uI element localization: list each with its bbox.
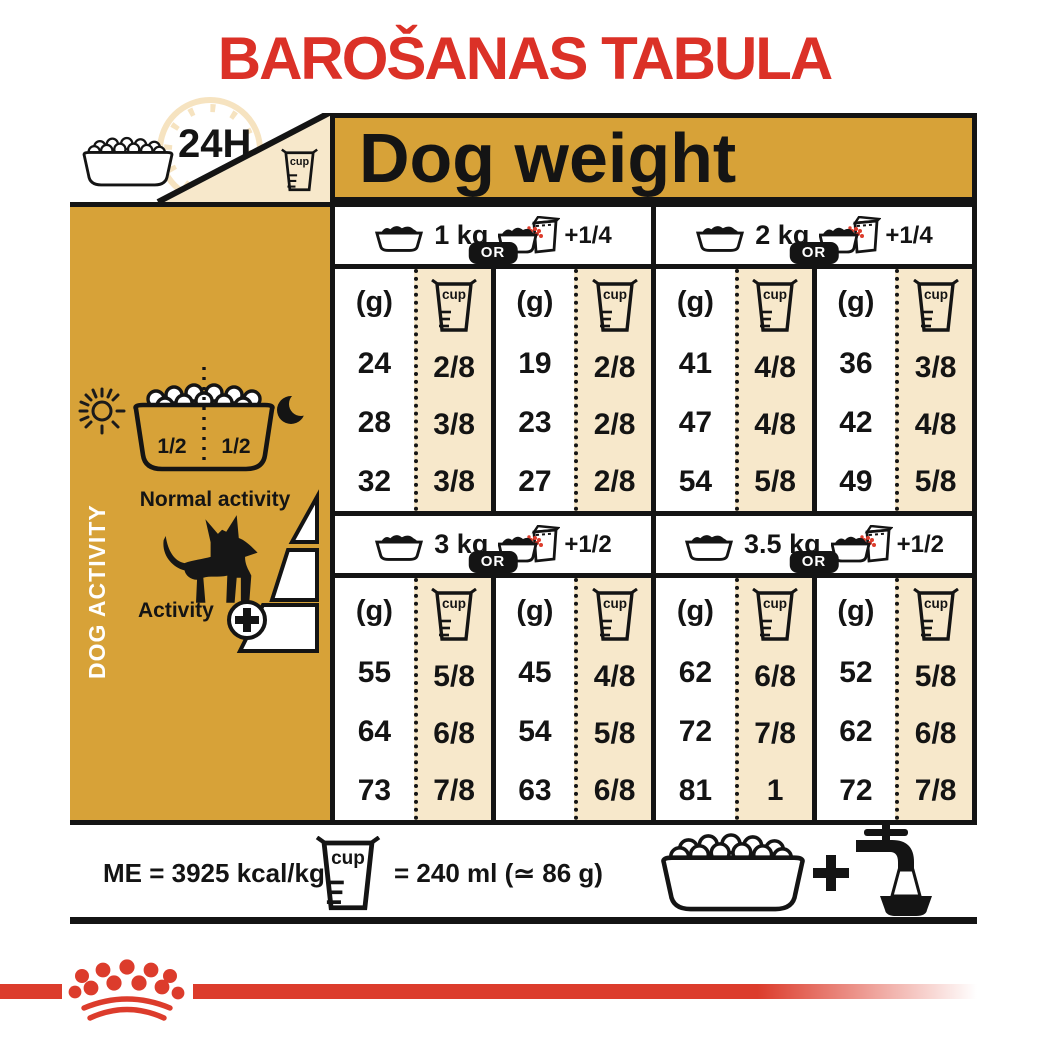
extra-pouch-fraction: +1/2 bbox=[564, 531, 611, 559]
half-half-bowl-icon: 1/2 1/2 bbox=[126, 365, 282, 477]
activity-plus-label: Activity bbox=[138, 599, 214, 623]
kibble-only-column: (g) 24 28 32 cup 2/8 3/8 3/8 bbox=[335, 269, 496, 511]
measuring-cup-icon: cup bbox=[315, 836, 381, 912]
kibble-plus-pouch-column: (g) 52 62 72 cup 5/8 6/8 7/8 bbox=[817, 578, 973, 820]
plus-circle-icon bbox=[226, 599, 268, 641]
grams-header: (g) bbox=[656, 269, 735, 335]
weight-group: 1 kg +1/4 OR (g) 24 28 32 bbox=[335, 207, 656, 511]
grams-value: 54 bbox=[656, 452, 735, 511]
grams-value: 28 bbox=[335, 394, 414, 453]
sun-icon bbox=[78, 387, 126, 435]
ration-data: (g) 24 28 32 cup 2/8 3/8 3/8 (g) 19 23 bbox=[335, 269, 651, 511]
grams-value: 55 bbox=[335, 644, 414, 703]
svg-text:cup: cup bbox=[603, 596, 627, 611]
cup-value: 7/8 bbox=[418, 763, 491, 820]
grams-value: 42 bbox=[817, 394, 896, 453]
weight-header-band: 3.5 kg +1/2 OR bbox=[656, 516, 972, 578]
measuring-cup-icon: cup bbox=[281, 145, 318, 196]
cup-value: 4/8 bbox=[899, 396, 972, 453]
cup-value: 2/8 bbox=[578, 339, 651, 396]
grams-header: (g) bbox=[335, 269, 414, 335]
measuring-cup-icon: cup bbox=[913, 279, 959, 333]
or-badge: OR bbox=[469, 242, 518, 264]
cup-value: 3/8 bbox=[899, 339, 972, 396]
grams-value: 63 bbox=[496, 761, 575, 820]
grams-value: 72 bbox=[656, 703, 735, 762]
kibble-plus-pouch-column: (g) 36 42 49 cup 3/8 4/8 5/8 bbox=[817, 269, 973, 511]
cup-header: cup bbox=[592, 588, 638, 642]
svg-text:cup: cup bbox=[763, 596, 787, 611]
svg-text:cup: cup bbox=[603, 287, 627, 302]
cup-value: 5/8 bbox=[578, 705, 651, 762]
food-bowl-icon bbox=[684, 529, 734, 561]
cup-header: cup bbox=[752, 279, 798, 333]
cup-value: 7/8 bbox=[739, 705, 812, 762]
cup-value: 1 bbox=[739, 763, 812, 820]
svg-text:cup: cup bbox=[924, 596, 948, 611]
grams-value: 52 bbox=[817, 644, 896, 703]
moon-icon bbox=[276, 391, 310, 429]
food-bowl-icon bbox=[374, 529, 424, 561]
grams-header: (g) bbox=[656, 578, 735, 644]
svg-text:cup: cup bbox=[924, 287, 948, 302]
cup-value: 2/8 bbox=[418, 339, 491, 396]
weight-header-band: 3 kg +1/2 OR bbox=[335, 516, 651, 578]
weight-group: 3 kg +1/2 OR (g) 55 64 73 bbox=[335, 516, 656, 820]
cup-value: 5/8 bbox=[899, 454, 972, 511]
cup-value: 6/8 bbox=[418, 705, 491, 762]
svg-text:cup: cup bbox=[331, 848, 365, 869]
grams-header: (g) bbox=[496, 269, 575, 335]
cup-value: 2/8 bbox=[578, 396, 651, 453]
cup-value: 6/8 bbox=[899, 705, 972, 762]
cup-value: 2/8 bbox=[578, 454, 651, 511]
grams-value: 41 bbox=[656, 335, 735, 394]
grams-value: 45 bbox=[496, 644, 575, 703]
grams-value: 49 bbox=[817, 452, 896, 511]
cup-header: cup bbox=[913, 588, 959, 642]
table-row-2: 3 kg +1/2 OR (g) 55 64 73 bbox=[335, 516, 972, 820]
cup-value: 6/8 bbox=[739, 648, 812, 705]
bowl-plus-wet-pouch-icon bbox=[831, 525, 893, 565]
table-row-1: 1 kg +1/4 OR (g) 24 28 32 bbox=[335, 207, 972, 516]
measuring-cup-icon: cup bbox=[592, 279, 638, 333]
cup-header-corner: cup bbox=[281, 145, 318, 196]
grams-value: 36 bbox=[817, 335, 896, 394]
kibble-only-column: (g) 62 72 81 cup 6/8 7/8 1 bbox=[656, 578, 817, 820]
water-tap-icon bbox=[852, 824, 940, 921]
extra-pouch-fraction: +1/2 bbox=[897, 531, 944, 559]
dog-weight-title: Dog weight bbox=[359, 123, 736, 193]
cup-equivalence-label: = 240 ml (≃ 86 g) bbox=[394, 858, 603, 889]
weight-header-band: 2 kg +1/4 OR bbox=[656, 207, 972, 269]
red-stripe bbox=[0, 984, 62, 999]
svg-text:cup: cup bbox=[442, 596, 466, 611]
dog-weight-header: Dog weight bbox=[330, 113, 977, 202]
red-stripe bbox=[193, 984, 977, 999]
cup-legend: cup bbox=[315, 836, 381, 912]
grams-value: 62 bbox=[817, 703, 896, 762]
cup-value: 3/8 bbox=[418, 454, 491, 511]
dog-activity-sidebar: 1/2 1/2 DOG ACTIVITY Normal activity Act… bbox=[70, 202, 330, 825]
kibble-plus-pouch-column: (g) 45 54 63 cup 4/8 5/8 6/8 bbox=[496, 578, 652, 820]
or-badge: OR bbox=[790, 242, 839, 264]
measuring-cup-icon: cup bbox=[431, 588, 477, 642]
cup-value: 3/8 bbox=[418, 396, 491, 453]
kibble-bowl-icon bbox=[652, 833, 814, 916]
food-bowl-icon bbox=[374, 220, 424, 252]
grams-value: 47 bbox=[656, 394, 735, 453]
metabolizable-energy-label: ME = 3925 kcal/kg bbox=[103, 858, 325, 889]
extra-pouch-fraction: +1/4 bbox=[564, 222, 611, 250]
grams-value: 54 bbox=[496, 703, 575, 762]
svg-text:cup: cup bbox=[442, 287, 466, 302]
grams-header: (g) bbox=[335, 578, 414, 644]
grams-value: 27 bbox=[496, 452, 575, 511]
measuring-cup-icon: cup bbox=[431, 279, 477, 333]
cup-header: cup bbox=[431, 588, 477, 642]
grams-value: 19 bbox=[496, 335, 575, 394]
grams-value: 81 bbox=[656, 761, 735, 820]
cup-header: cup bbox=[752, 588, 798, 642]
weight-group: 2 kg +1/4 OR (g) 41 47 54 bbox=[656, 207, 972, 511]
grams-value: 72 bbox=[817, 761, 896, 820]
weight-group: 3.5 kg +1/2 OR (g) 62 72 81 bbox=[656, 516, 972, 820]
cup-value: 7/8 bbox=[899, 763, 972, 820]
or-badge: OR bbox=[790, 551, 839, 573]
measuring-cup-icon: cup bbox=[913, 588, 959, 642]
grams-header: (g) bbox=[817, 578, 896, 644]
cup-header: cup bbox=[592, 279, 638, 333]
food-bowl-icon bbox=[695, 220, 745, 252]
grams-value: 24 bbox=[335, 335, 414, 394]
grams-value: 62 bbox=[656, 644, 735, 703]
kibble-plus-pouch-column: (g) 19 23 27 cup 2/8 2/8 2/8 bbox=[496, 269, 652, 511]
grams-header: (g) bbox=[496, 578, 575, 644]
measuring-cup-icon: cup bbox=[752, 279, 798, 333]
feeding-table: 1 kg +1/4 OR (g) 24 28 32 bbox=[330, 202, 977, 825]
cup-header: cup bbox=[913, 279, 959, 333]
ration-data: (g) 62 72 81 cup 6/8 7/8 1 (g) 52 62 bbox=[656, 578, 972, 820]
divider-rule bbox=[70, 917, 977, 924]
grams-header: (g) bbox=[817, 269, 896, 335]
page-title: BAROŠANAS TABULA bbox=[0, 24, 1049, 93]
kibble-only-column: (g) 41 47 54 cup 4/8 4/8 5/8 bbox=[656, 269, 817, 511]
cup-value: 5/8 bbox=[739, 454, 812, 511]
plus-icon bbox=[812, 854, 850, 892]
grams-value: 73 bbox=[335, 761, 414, 820]
grams-value: 23 bbox=[496, 394, 575, 453]
grams-value: 32 bbox=[335, 452, 414, 511]
cup-value: 5/8 bbox=[899, 648, 972, 705]
weight-header-band: 1 kg +1/4 OR bbox=[335, 207, 651, 269]
grams-value: 64 bbox=[335, 703, 414, 762]
or-badge: OR bbox=[469, 551, 518, 573]
extra-pouch-fraction: +1/4 bbox=[885, 222, 932, 250]
cup-value: 6/8 bbox=[578, 763, 651, 820]
svg-text:cup: cup bbox=[763, 287, 787, 302]
svg-text:cup: cup bbox=[290, 156, 310, 168]
feeding-table-page: BAROŠANAS TABULA 24H cup Dog weight bbox=[0, 0, 1049, 1049]
cup-value: 4/8 bbox=[739, 396, 812, 453]
cup-value: 4/8 bbox=[739, 339, 812, 396]
half-right-label: 1/2 bbox=[221, 435, 250, 458]
cup-value: 4/8 bbox=[578, 648, 651, 705]
measuring-cup-icon: cup bbox=[592, 588, 638, 642]
half-left-label: 1/2 bbox=[157, 435, 186, 458]
ration-data: (g) 41 47 54 cup 4/8 4/8 5/8 (g) 36 42 bbox=[656, 269, 972, 511]
cup-value: 5/8 bbox=[418, 648, 491, 705]
dog-activity-title: DOG ACTIVITY bbox=[84, 479, 111, 679]
ration-data: (g) 55 64 73 cup 5/8 6/8 7/8 (g) 45 54 bbox=[335, 578, 651, 820]
royal-canin-crown-logo bbox=[62, 950, 192, 1028]
kibble-only-column: (g) 55 64 73 cup 5/8 6/8 7/8 bbox=[335, 578, 496, 820]
measuring-cup-icon: cup bbox=[752, 588, 798, 642]
cup-header: cup bbox=[431, 279, 477, 333]
